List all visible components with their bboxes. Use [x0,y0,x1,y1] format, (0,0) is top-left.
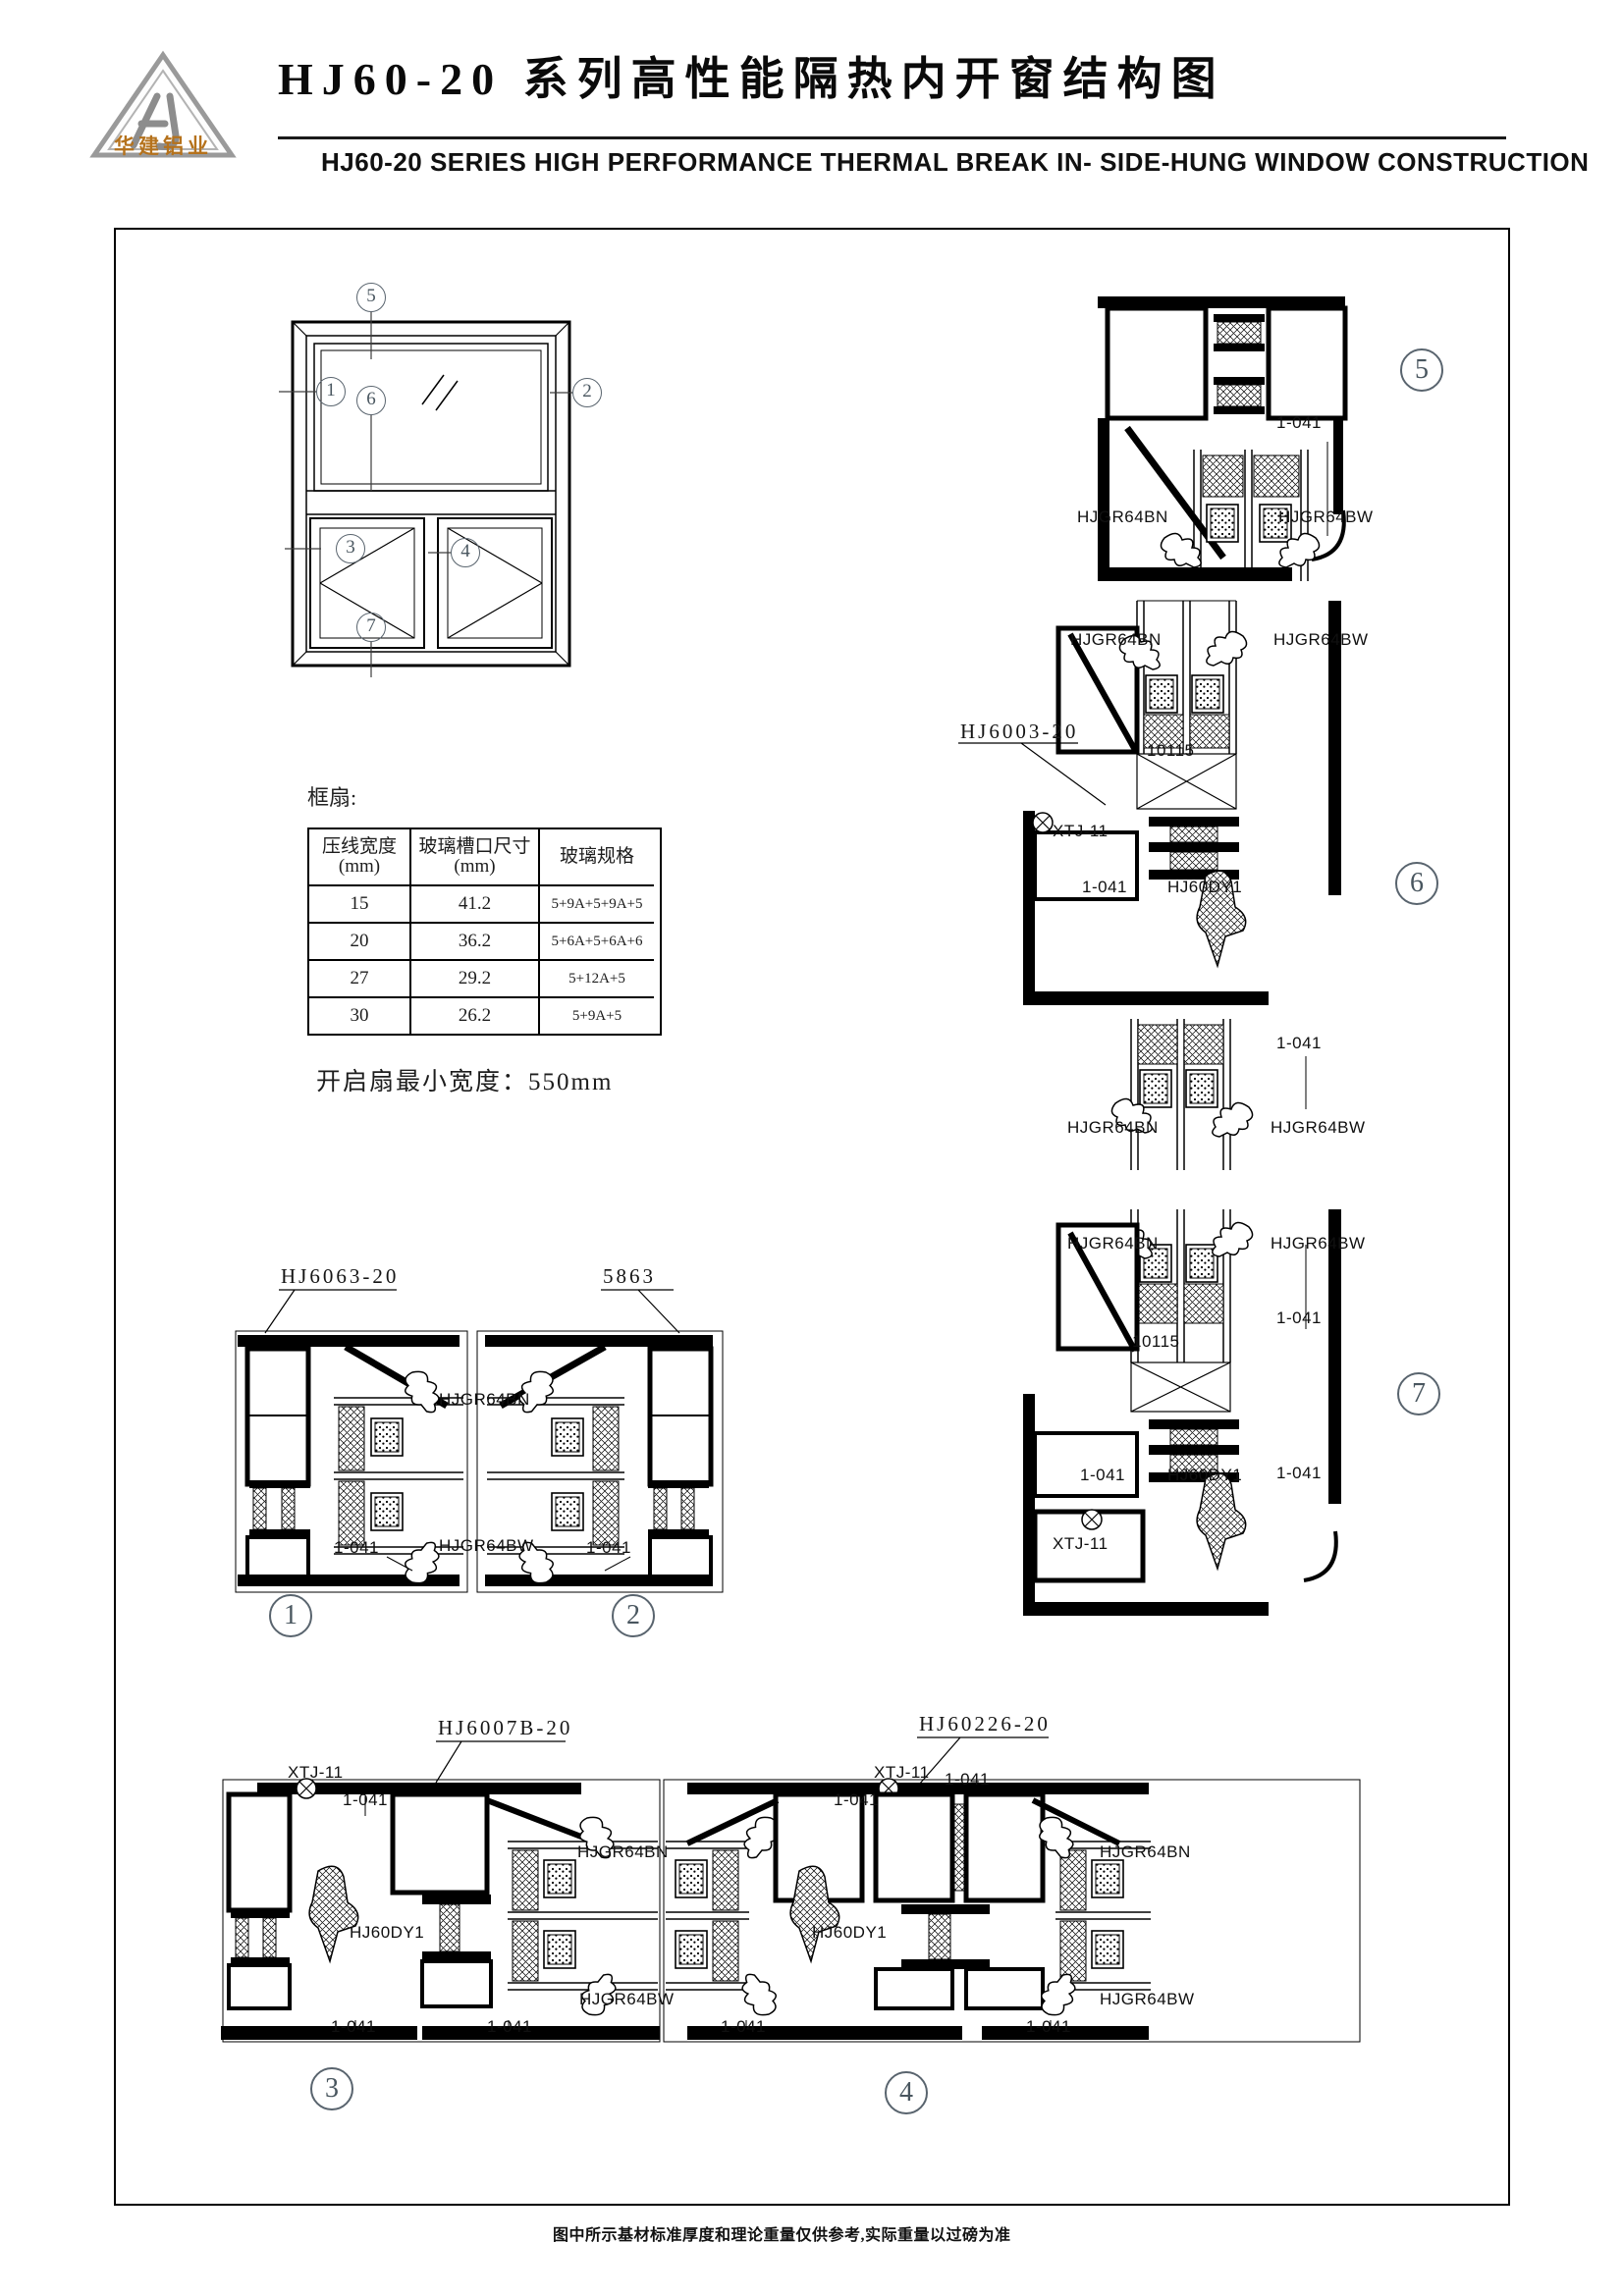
page-title: HJ60-20 系列高性能隔热内开窗结构图 [278,43,1225,108]
table-cell: 26.2 [411,998,540,1034]
part-label: XTJ-11 [874,1763,930,1783]
callout-3: 3 [336,534,365,563]
table-cell: 5+9A+5 [540,998,654,1034]
part-label: 1-041 [1276,413,1322,433]
detail-number-4: 4 [885,2071,928,2114]
table-cell: 15 [309,886,411,924]
part-label: HJGR64BN [1077,507,1168,527]
part-label: HJ60DY1 [350,1923,424,1943]
part-label: HJGR64BN [439,1390,530,1410]
detail-number-5: 5 [1400,348,1443,392]
part-label: 1-041 [1276,1308,1322,1328]
table-cell: 36.2 [411,924,540,961]
detail-number-7: 7 [1397,1372,1440,1415]
logo-caption: 华建铝业 [86,131,240,160]
part-label: HJGR64BW [1273,630,1369,650]
glass-spec-table: 压线宽度(mm) 玻璃槽口尺寸(mm) 玻璃规格 15 41.2 5+9A+5+… [307,828,662,1036]
profile-label-hj6007b-20: HJ6007B-20 [438,1716,572,1740]
part-label: 1-041 [343,1790,388,1810]
part-label: XTJ-11 [1053,822,1109,841]
part-label: HJGR64BN [577,1842,669,1862]
part-label: HJGR64BN [1067,1118,1159,1138]
callout-7: 7 [356,613,386,642]
profile-label-hj6003-20: HJ6003-20 [960,720,1078,744]
drawing-sheet: HJ60-20 系列高性能隔热内开窗结构图 HJ60-20 SERIES HIG… [0,0,1623,2296]
part-label: 1-041 [1276,1034,1322,1053]
footer-note: 图中所示基材标准厚度和理论重量仅供参考,实际重量以过磅为准 [553,2221,1011,2245]
callout-4: 4 [451,538,480,567]
table-cell: 5+9A+5+9A+5 [540,886,654,924]
detail-number-3: 3 [310,2067,353,2110]
callout-5: 5 [356,283,386,312]
col-header-bead-width: 压线宽度(mm) [309,829,411,886]
profile-label-hj6063-20: HJ6063-20 [281,1264,399,1289]
table-cell: 5+6A+5+6A+6 [540,924,654,961]
part-label: 1-041 [1026,2017,1071,2037]
part-label: 1-041 [1276,1464,1322,1483]
table-cell: 30 [309,998,411,1034]
part-label: HJGR64BW [1271,1118,1366,1138]
part-label: HJ60DY1 [812,1923,887,1943]
part-label: 1-041 [945,1770,990,1789]
profile-label-hj60226-20: HJ60226-20 [919,1712,1051,1736]
part-label: XTJ-11 [288,1763,344,1783]
part-label: HJGR64BW [1100,1990,1195,2009]
part-label: HJGR64BN [1070,630,1162,650]
part-label: 1-041 [1082,878,1127,897]
part-label: 1-041 [334,1538,379,1558]
min-sash-width-note: 开启扇最小宽度：550mm [316,1062,613,1097]
title-divider [278,136,1506,139]
part-label: 10115 [1147,741,1195,761]
callout-2: 2 [572,378,602,407]
part-label: 1-041 [586,1538,631,1558]
callout-6: 6 [356,386,386,415]
part-label: 1-041 [834,1790,879,1810]
table-cell: 41.2 [411,886,540,924]
part-label: HJ60DY1 [1167,1466,1242,1485]
part-label: 1-041 [487,2017,532,2037]
table-cell: 27 [309,961,411,998]
part-label: XTJ-11 [1053,1534,1109,1554]
page-subtitle: HJ60-20 SERIES HIGH PERFORMANCE THERMAL … [321,147,1589,178]
spec-table-caption: 框扇: [307,780,356,812]
part-label: HJGR64BW [439,1536,534,1556]
part-label: 1-041 [721,2017,766,2037]
col-header-glass-notch: 玻璃槽口尺寸(mm) [411,829,540,886]
detail-number-6: 6 [1395,862,1438,905]
part-label: HJGR64BW [1271,1234,1366,1254]
part-label: HJGR64BW [1278,507,1374,527]
part-label: HJGR64BN [1067,1234,1159,1254]
part-label: HJGR64BN [1100,1842,1191,1862]
part-label: HJGR64BW [579,1990,675,2009]
detail-number-1: 1 [269,1594,312,1637]
table-cell: 29.2 [411,961,540,998]
callout-1: 1 [316,377,346,406]
part-label: HJ60DY1 [1167,878,1242,897]
table-cell: 20 [309,924,411,961]
detail-number-2: 2 [612,1594,655,1637]
col-header-glass-spec: 玻璃规格 [540,829,654,886]
part-label: 10115 [1132,1332,1180,1352]
table-cell: 5+12A+5 [540,961,654,998]
part-label: 1-041 [331,2017,376,2037]
part-label: 1-041 [1080,1466,1125,1485]
profile-label-5863: 5863 [603,1264,656,1289]
